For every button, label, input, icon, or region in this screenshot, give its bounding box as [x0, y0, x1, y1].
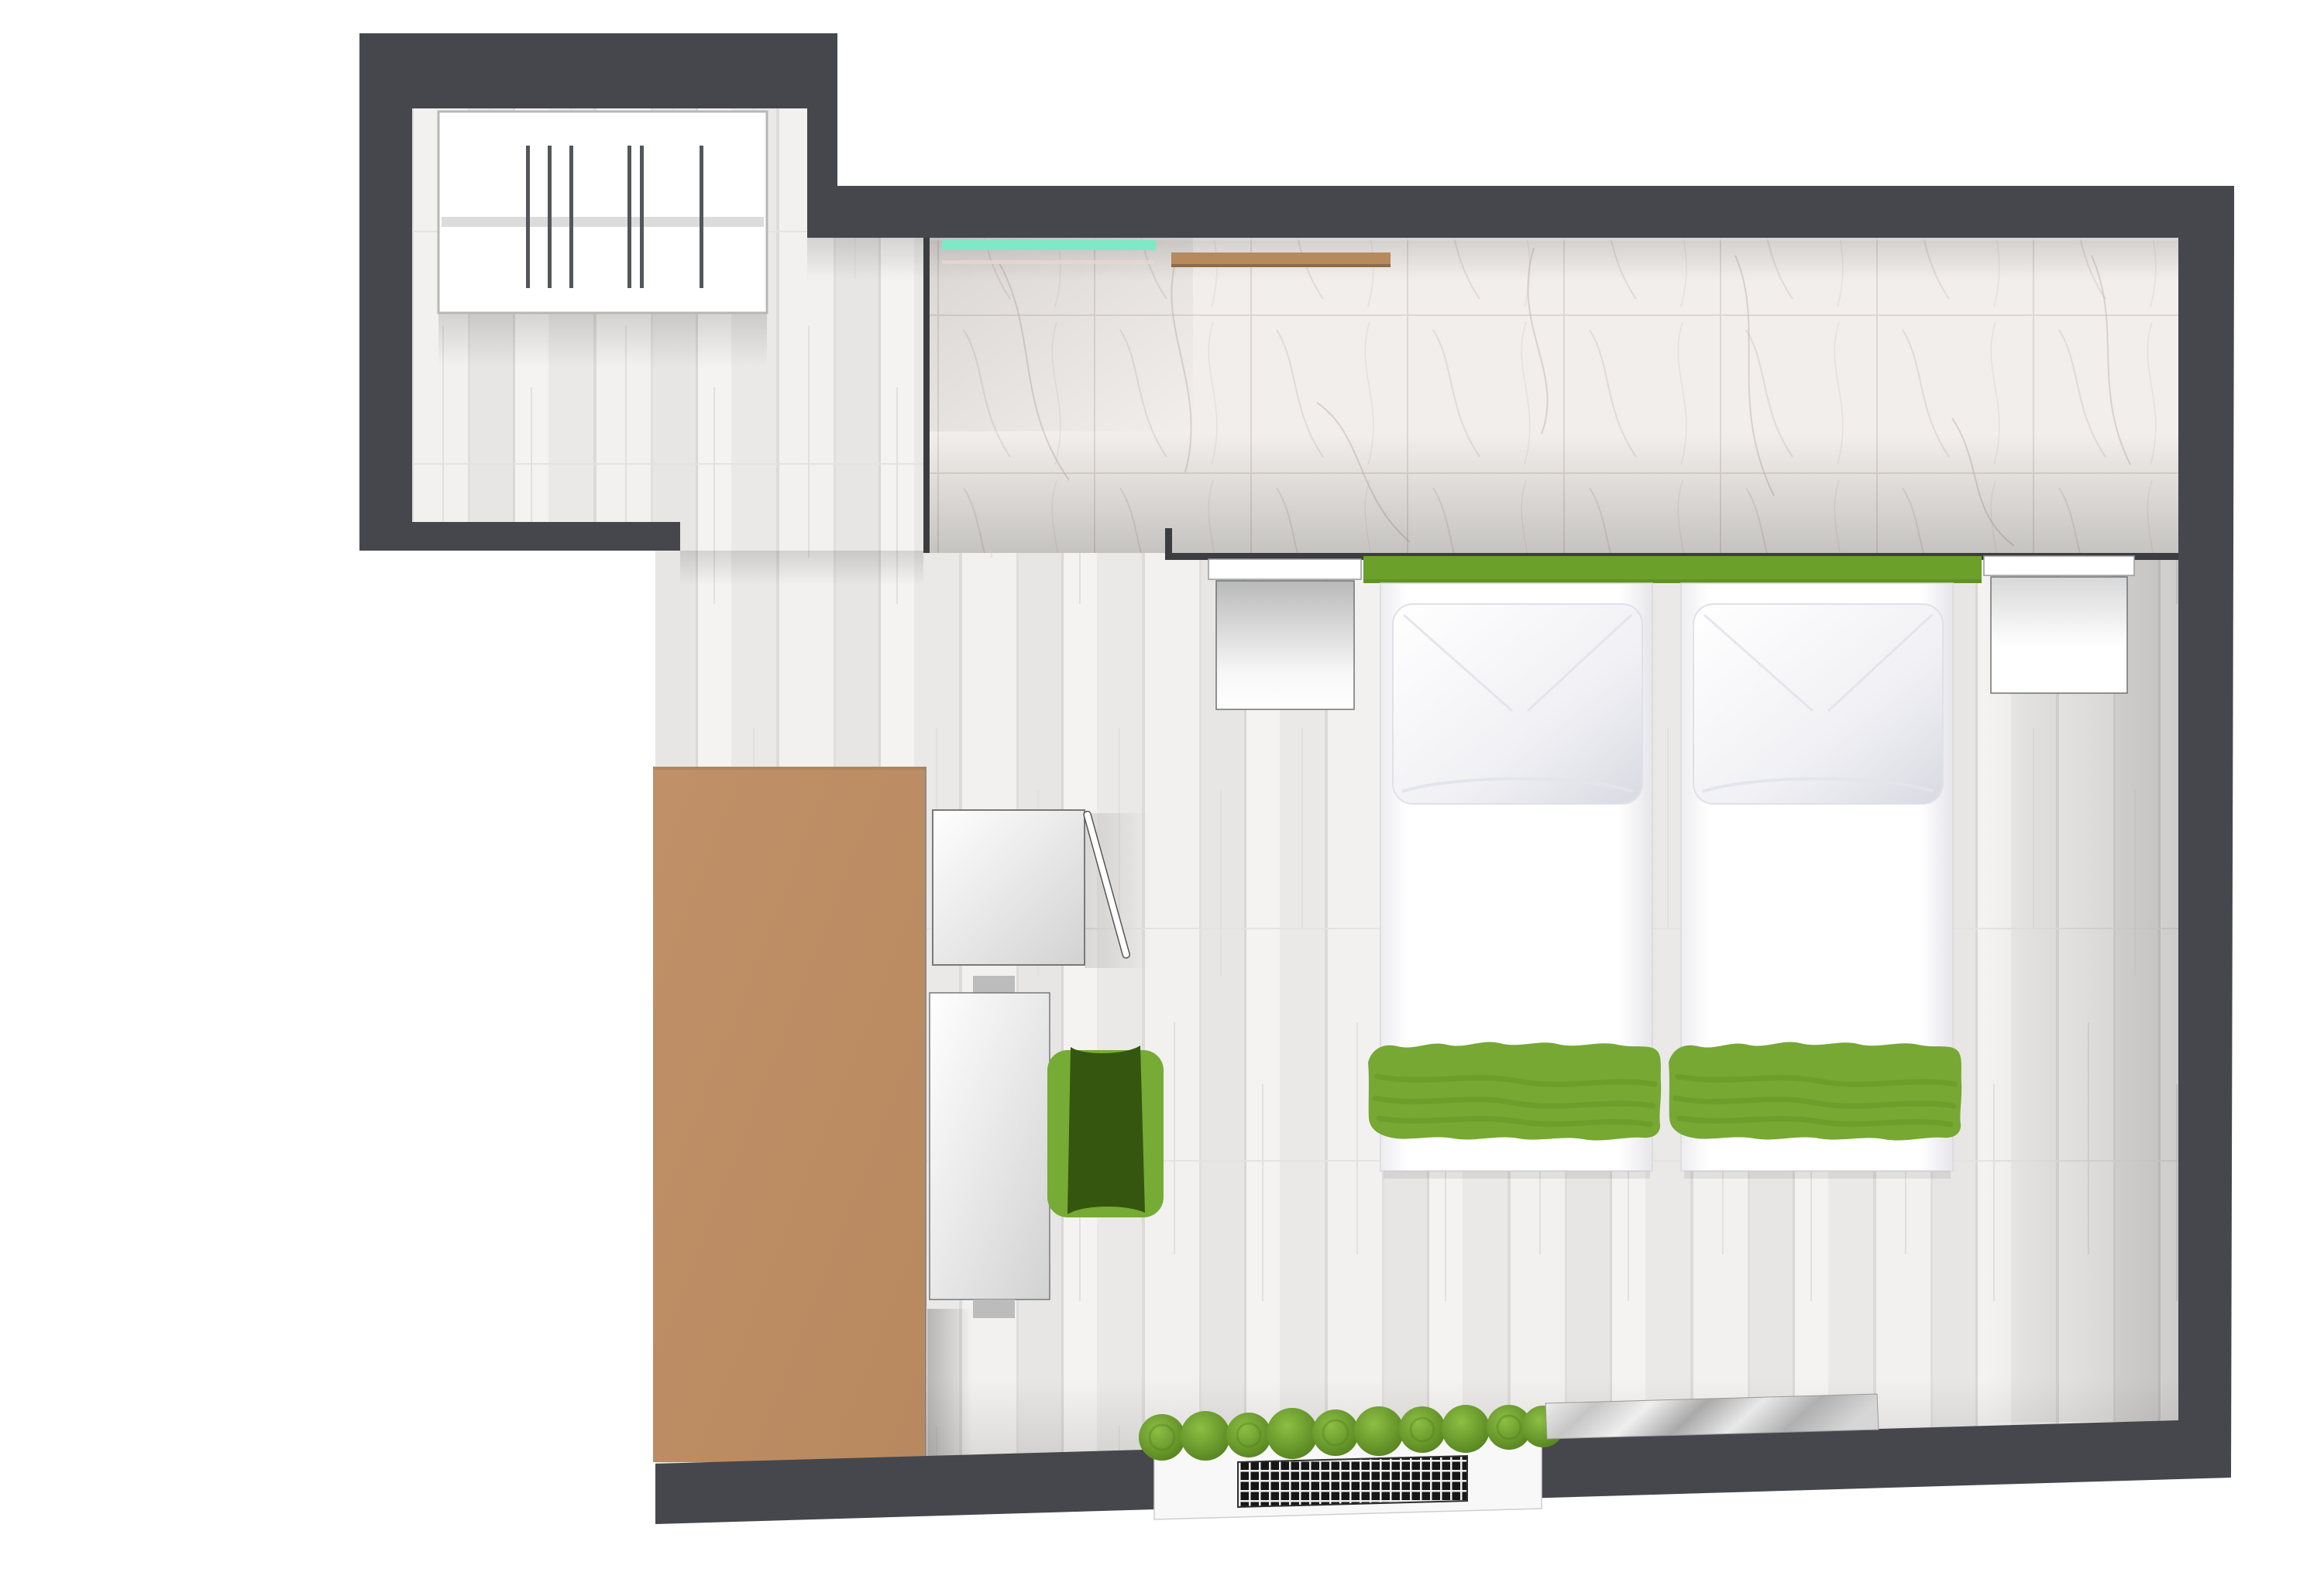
- wardrobe-body: [438, 112, 767, 313]
- plant-1: [1139, 1414, 1185, 1461]
- plant-7: [1399, 1406, 1446, 1453]
- wall-right: [2178, 238, 2234, 1478]
- nightstand-top: [1208, 559, 1361, 579]
- wall-top: [837, 186, 2234, 238]
- wall-alcove-left: [359, 33, 412, 551]
- nightstand-body: [1216, 581, 1354, 709]
- twin-bed-left: [1368, 583, 1661, 1179]
- minibar-cabinet: [933, 810, 1085, 965]
- nightstand-left: [1208, 559, 1361, 709]
- wall-alcove-right: [807, 108, 837, 238]
- desk: [653, 767, 926, 1462]
- glass-shelf: [942, 240, 1156, 250]
- hanger-1: [526, 146, 530, 288]
- shadow-tile-left: [930, 238, 1193, 431]
- plant-3: [1226, 1413, 1271, 1457]
- tall-cabinet: [930, 993, 1050, 1299]
- hanger-3: [569, 146, 573, 288]
- plant-8: [1442, 1405, 1490, 1453]
- wall-divider: [923, 238, 930, 553]
- headboard-panel: [1363, 556, 1982, 583]
- shadow-tile-bottom: [930, 434, 2178, 553]
- hanger-4: [627, 146, 631, 288]
- hanger-2: [548, 146, 552, 288]
- chair-seat: [1067, 1045, 1145, 1214]
- plant-2: [1181, 1411, 1230, 1461]
- plant-6: [1354, 1406, 1404, 1456]
- cabinet-hinge-top: [973, 976, 1015, 994]
- shadow-alcove-strip: [807, 238, 923, 280]
- shadow-under-stub: [680, 551, 923, 585]
- twin-bed-right: [1669, 583, 1961, 1179]
- wall-alcove-stub: [412, 522, 680, 551]
- cabinet-hinge-bottom: [973, 1299, 1015, 1318]
- shadow-under-wardrobe: [438, 313, 767, 367]
- radiator-grill: [1238, 1456, 1467, 1507]
- glass-shelf-accent: [942, 260, 1154, 264]
- desk-top-edge: [653, 767, 926, 770]
- hanger-5: [640, 146, 644, 288]
- nightstand-right: [1984, 556, 2134, 693]
- nightstand-body: [1991, 577, 2127, 693]
- hanger-rail: [442, 217, 764, 227]
- plant-4: [1267, 1408, 1318, 1459]
- hanger-6: [700, 146, 703, 288]
- wall-alcove-top: [359, 33, 837, 108]
- wall-shelf-edge: [1171, 264, 1391, 267]
- desk-chair: [1047, 1045, 1164, 1217]
- floor-plan: [0, 0, 2324, 1569]
- nightstand-top: [1984, 556, 2134, 575]
- plant-5: [1312, 1409, 1359, 1456]
- wardrobe: [438, 112, 767, 313]
